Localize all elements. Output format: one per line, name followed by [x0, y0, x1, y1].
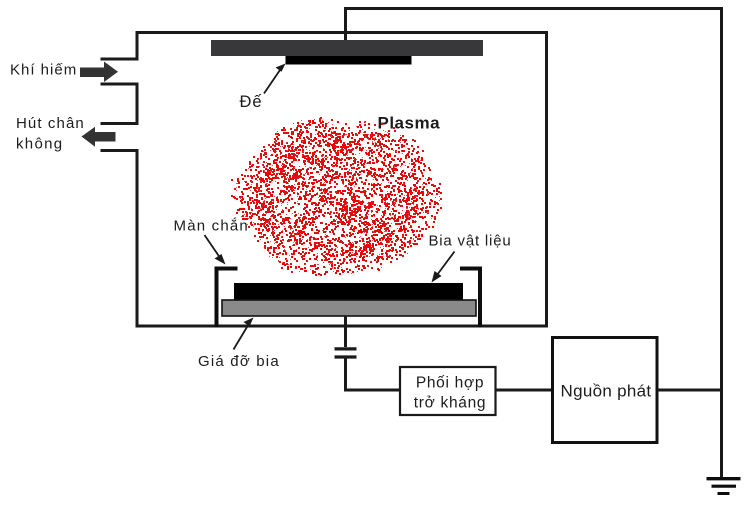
svg-text:Plasma: Plasma: [378, 114, 441, 133]
svg-text:Phối hợp: Phối hợp: [416, 375, 484, 392]
svg-text:Giá đỡ bia: Giá đỡ bia: [198, 353, 280, 370]
svg-text:Khí hiếm: Khí hiếm: [10, 62, 77, 79]
svg-text:trở kháng: trở kháng: [414, 395, 486, 412]
svg-text:Nguồn phát: Nguồn phát: [561, 382, 652, 401]
svg-text:Đế: Đế: [240, 93, 263, 111]
svg-text:Màn chắn: Màn chắn: [174, 218, 249, 235]
svg-text:Bia vật liệu: Bia vật liệu: [429, 233, 512, 250]
svg-text:không: không: [16, 136, 63, 153]
svg-text:Hút chân: Hút chân: [16, 115, 85, 132]
